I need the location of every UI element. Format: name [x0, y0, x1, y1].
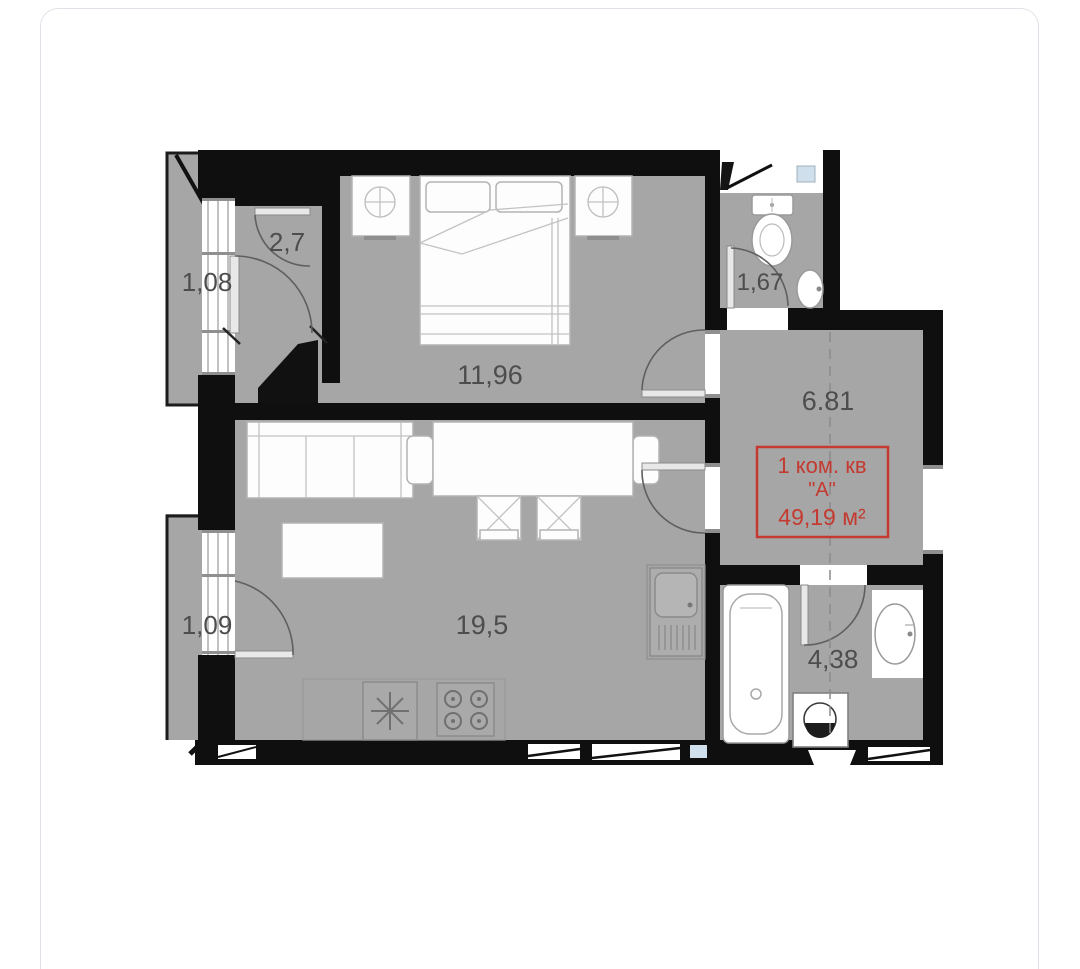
chair — [633, 436, 659, 484]
washer-notch — [808, 750, 856, 765]
area-label-bedroom: 11,96 — [457, 360, 523, 390]
chair — [477, 496, 521, 540]
double-bed — [420, 176, 570, 345]
kitchen-sink — [363, 682, 417, 740]
nightstand-right — [575, 176, 632, 240]
area-label-living: 19,5 — [456, 610, 509, 640]
sofa — [247, 422, 413, 498]
area-label-balcony-bottom: 1,09 — [182, 610, 233, 640]
bathroom-sink — [872, 590, 923, 678]
chair — [407, 436, 433, 484]
area-label-entry: 2,7 — [269, 227, 305, 257]
entrance-jamb-bottom — [923, 550, 943, 554]
dining-table — [433, 422, 633, 496]
area-label-hallway: 6.81 — [802, 386, 855, 416]
nightstand-left — [352, 176, 410, 240]
unit-label-line1: 1 ком. кв — [777, 453, 866, 478]
wc-corner-sink — [797, 270, 823, 308]
sink-unit-drainboard — [647, 565, 705, 659]
unit-label-line2: "А" — [808, 479, 836, 501]
shaft-window — [797, 166, 815, 182]
vent-shaft — [720, 160, 823, 193]
floor-plan-svg: 1 ком. кв "А" 49,19 м² 1,08 2,7 11,96 1,… — [160, 138, 945, 768]
washing-machine — [793, 693, 848, 747]
unit-label-line3: 49,19 м² — [778, 504, 866, 530]
bottom-window-glass — [690, 745, 707, 758]
stove — [437, 683, 494, 736]
entrance-jamb-top — [923, 465, 943, 469]
area-label-bathroom: 4,38 — [808, 644, 859, 674]
chair — [537, 496, 581, 540]
area-label-wc: 1,67 — [737, 269, 784, 296]
area-label-balcony-top: 1,08 — [182, 267, 233, 297]
floor-plan: 1 ком. кв "А" 49,19 м² 1,08 2,7 11,96 1,… — [160, 138, 945, 768]
coffee-table — [282, 523, 383, 578]
bathtub — [723, 585, 789, 743]
pillow — [426, 182, 490, 212]
